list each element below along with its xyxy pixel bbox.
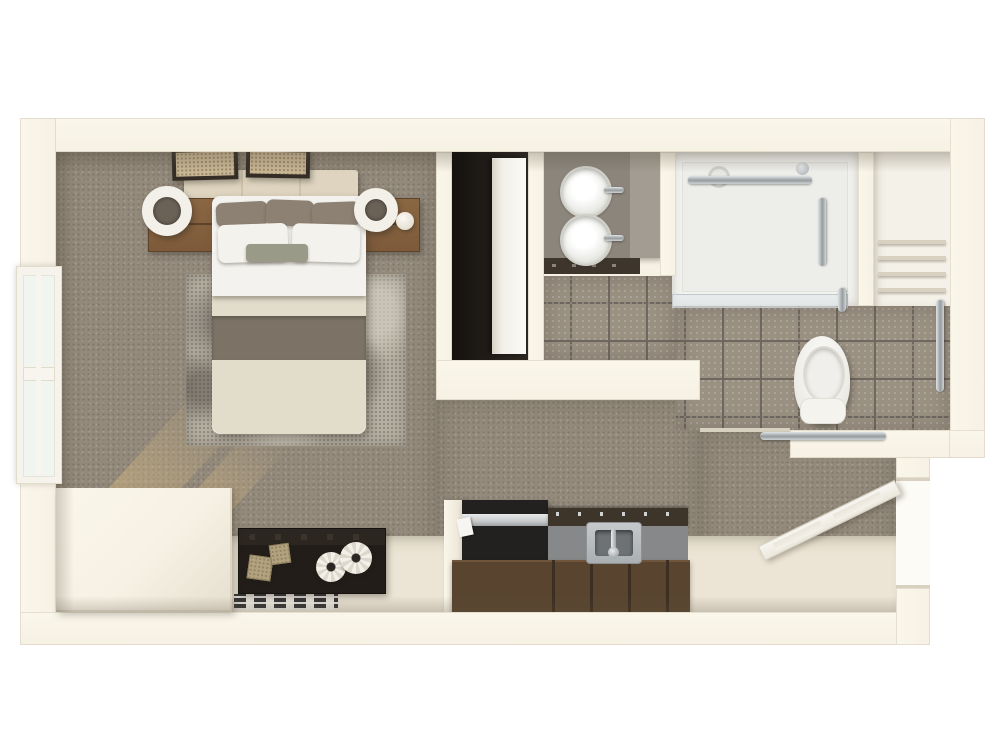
wall-east-upper [950,118,985,458]
console-knobs [249,534,377,540]
faucet-sprayer [608,547,619,558]
cabinet-seam [666,560,669,612]
entry-doorway-gap [896,478,930,588]
wall-art-left [172,147,239,181]
floor-plan-canvas [0,0,1000,750]
shower-head [796,162,809,175]
blanket-band [212,316,366,360]
kitchen-cabinet-front [452,560,690,612]
lamp-right [354,188,398,232]
wall-north [20,118,985,152]
toilet-grab-bar-vertical [936,300,944,392]
bed [212,196,366,434]
toilet-seat [803,346,845,402]
vanity-faucet-upper [604,187,624,193]
cabinet-seam [590,560,593,612]
decor-sphere [396,212,414,230]
duvet [212,294,366,434]
lamp-left [142,186,192,236]
decor-gear-right [340,542,372,574]
linen-niche [874,152,950,306]
window-mullion [36,275,41,475]
linen-shelf [878,272,946,276]
counter-screws [556,512,680,516]
striped-mat [234,594,338,610]
decor-cube-large [246,554,273,581]
refrigerator [462,500,548,560]
wall-shower-niche-divider [858,152,874,306]
tile-floor-bathroom-west [544,276,676,360]
cabinet-seam [628,560,631,612]
decor-cube-small [269,543,292,566]
wall-east-lower-b [896,588,930,645]
art-print [176,151,235,177]
wall-south [20,612,930,645]
wall-art-right [246,147,311,178]
shower-door-handle [838,288,846,312]
shower-glass-panel [672,294,848,308]
toilet-grab-bar-horizontal [760,432,886,440]
kitchen-faucet [611,529,616,549]
shower-grab-bar [818,198,826,266]
toilet-seat-pad [800,398,846,424]
cabinet-seam [552,560,555,612]
linen-shelf [878,240,946,244]
stainless-top [462,514,548,526]
window-ledge-enclosure [56,488,232,612]
toilet [794,336,850,424]
kitchen-sink [586,522,642,564]
linen-shelf [878,288,946,292]
vanity-faucet-lower [604,235,624,241]
vanity-top-light-edge [630,152,660,258]
closet-sliding-door [492,158,526,354]
lumbar-pillow [246,244,308,262]
wall-vanity-shower-divider [660,152,676,276]
linen-shelf [878,256,946,260]
window [16,266,62,484]
shower-towel-bar [688,176,812,184]
art-print [250,152,306,175]
wall-bathroom-southwest [436,360,700,400]
